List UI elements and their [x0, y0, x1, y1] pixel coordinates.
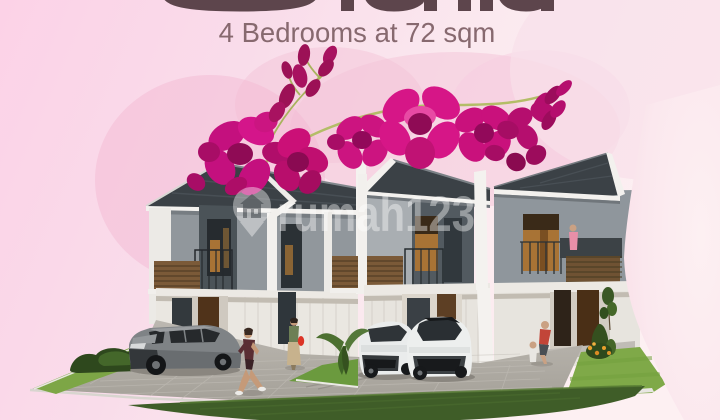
svg-text:4 Bedrooms at 72 sqm: 4 Bedrooms at 72 sqm [219, 17, 496, 48]
svg-text:rumah123: rumah123 [277, 186, 475, 242]
